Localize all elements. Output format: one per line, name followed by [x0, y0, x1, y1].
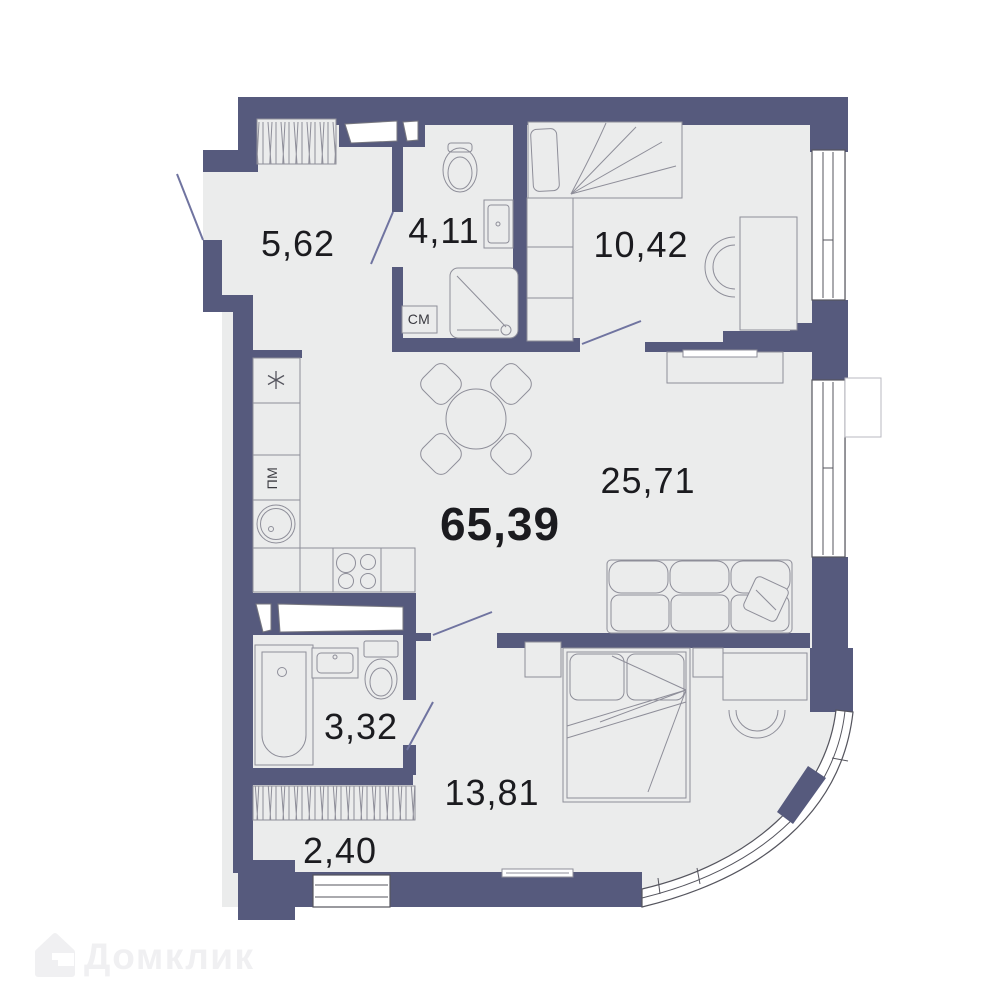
- wall-right-mid: [812, 557, 848, 648]
- storage-column-icon: [527, 198, 573, 341]
- ac-unit-box: [845, 378, 881, 437]
- label-bedroom-top: 10,42: [593, 224, 688, 265]
- sofa-icon: [607, 560, 792, 633]
- window-bottom: [313, 875, 390, 907]
- watermark-brand: Домклик: [84, 936, 255, 977]
- wall-kitchen-stub: [245, 350, 302, 358]
- label-bathroom-top: 4,11: [408, 210, 479, 251]
- bathtub-icon: [255, 645, 313, 765]
- label-total-area: 65,39: [440, 498, 560, 550]
- closet-hatch: [257, 119, 336, 164]
- wall-right-upper: [812, 300, 848, 380]
- wall-left-lower: [233, 308, 253, 873]
- domclick-logo-icon: [38, 936, 74, 974]
- washing-machine-box: СМ: [402, 306, 437, 333]
- wall-bed-bottom-stub: [414, 633, 431, 641]
- wall-bath-top-left-b: [392, 267, 403, 341]
- label-bathroom-bottom: 3,32: [324, 706, 398, 747]
- label-bedroom-bottom: 13,81: [444, 772, 539, 813]
- window-living: [812, 380, 845, 557]
- window-bedroom-top: [812, 150, 845, 300]
- bed-single-icon: [528, 122, 682, 198]
- kitchen-counter: [253, 548, 415, 592]
- label-living: 25,71: [600, 460, 695, 501]
- label-hallway: 5,62: [261, 223, 335, 264]
- wardrobe-closet: [253, 786, 415, 820]
- desk-top-icon: [740, 217, 797, 330]
- wall-corner-bottom-left: [238, 860, 295, 920]
- bed-double-icon: [563, 648, 690, 802]
- nightstand-icon: [525, 642, 561, 677]
- wall-right-lower: [810, 648, 853, 712]
- floorplan-svg: ПМ: [0, 0, 1000, 1000]
- sink-bottom-icon: [312, 648, 358, 678]
- dishwasher-label: ПМ: [264, 467, 280, 490]
- shaft-bottom-large: [278, 604, 403, 632]
- hallway-closet: [257, 119, 336, 164]
- side-table-icon: [693, 648, 723, 677]
- floorplan-page: ПМ: [0, 0, 1000, 1000]
- tv-stand-icon: [667, 350, 783, 383]
- sink-top-icon: [484, 200, 513, 248]
- wall-bath-bottom-bottom: [253, 768, 413, 785]
- desk-bottom-icon: [723, 653, 807, 700]
- wall-bath-bottom-right-a: [403, 593, 416, 700]
- wall-entry-porch: [203, 150, 252, 172]
- label-wardrobe: 2,40: [303, 830, 377, 871]
- radiator-icon: [502, 869, 573, 877]
- shaft-top-large: [345, 121, 397, 143]
- shower-icon: [450, 268, 518, 338]
- entry-door-leaf: [177, 174, 203, 240]
- wardrobe-hatch: [253, 786, 415, 820]
- watermark: Домклик: [38, 936, 255, 977]
- washing-machine-label: СМ: [408, 311, 431, 327]
